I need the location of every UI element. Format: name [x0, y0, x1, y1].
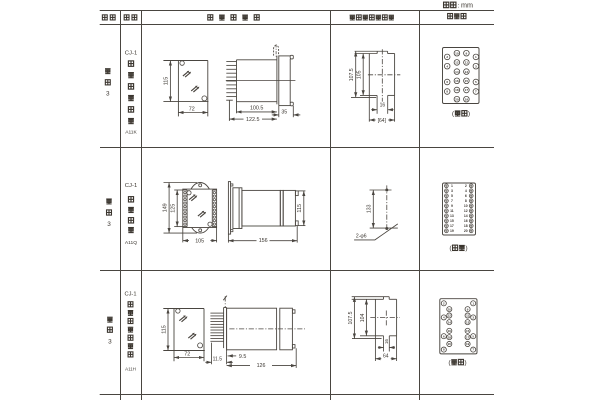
svg-text:8: 8 — [465, 199, 467, 203]
svg-text:15: 15 — [450, 219, 454, 223]
svg-text:156: 156 — [259, 238, 268, 244]
svg-text:17: 17 — [465, 88, 469, 92]
svg-text:4: 4 — [446, 64, 448, 68]
svg-text:10: 10 — [455, 51, 459, 55]
svg-text:8: 8 — [446, 90, 448, 94]
svg-text:115: 115 — [297, 204, 303, 213]
svg-text:107.5: 107.5 — [349, 68, 355, 81]
svg-text:3: 3 — [106, 91, 110, 98]
svg-text:9.5: 9.5 — [239, 354, 246, 360]
svg-text:3: 3 — [475, 64, 477, 68]
svg-text:133: 133 — [367, 204, 373, 213]
svg-text:): ) — [468, 111, 470, 118]
svg-text:5: 5 — [451, 194, 453, 198]
svg-text:18: 18 — [448, 335, 452, 339]
svg-text:18: 18 — [464, 224, 468, 228]
svg-text:A11Q: A11Q — [125, 240, 137, 246]
svg-text:20: 20 — [464, 229, 468, 233]
svg-text:11: 11 — [450, 209, 454, 213]
svg-text:15: 15 — [466, 329, 470, 333]
svg-text:12: 12 — [464, 209, 468, 213]
svg-text:12: 12 — [448, 314, 452, 318]
svg-text:149: 149 — [162, 203, 168, 212]
svg-text:105: 105 — [195, 238, 204, 244]
svg-text:7: 7 — [451, 199, 453, 203]
svg-text:16: 16 — [448, 329, 452, 333]
svg-text:9: 9 — [466, 51, 468, 55]
svg-text:2: 2 — [446, 55, 448, 59]
svg-text:6: 6 — [446, 80, 448, 84]
svg-text:105: 105 — [357, 70, 363, 79]
svg-text:14: 14 — [455, 70, 459, 74]
svg-text:19: 19 — [466, 342, 470, 346]
svg-text:mm: mm — [461, 1, 473, 10]
svg-text:20: 20 — [448, 342, 452, 346]
svg-text:64: 64 — [383, 353, 389, 359]
svg-text:15: 15 — [465, 79, 469, 83]
svg-text:16: 16 — [384, 339, 389, 345]
svg-text:2: 2 — [465, 184, 467, 188]
svg-text:11.5: 11.5 — [213, 357, 223, 363]
svg-text:11: 11 — [466, 314, 469, 318]
svg-text:122.5: 122.5 — [246, 117, 260, 123]
svg-text:3: 3 — [451, 189, 453, 193]
svg-text:35: 35 — [281, 109, 287, 115]
svg-text:13: 13 — [466, 320, 470, 324]
svg-text:13: 13 — [465, 70, 469, 74]
svg-text:19: 19 — [450, 229, 454, 233]
svg-text:16: 16 — [455, 79, 459, 83]
svg-text:CJ-1: CJ-1 — [124, 291, 136, 297]
svg-text:A11K: A11K — [125, 130, 137, 136]
svg-text:11: 11 — [465, 61, 469, 65]
svg-text:16: 16 — [464, 219, 468, 223]
svg-text:18: 18 — [455, 88, 459, 92]
svg-text:20: 20 — [455, 97, 459, 101]
svg-text:126: 126 — [257, 363, 266, 369]
svg-text:6: 6 — [465, 194, 467, 198]
svg-text:115: 115 — [164, 77, 170, 86]
svg-text:10: 10 — [448, 307, 452, 311]
svg-text:CJ-1: CJ-1 — [125, 183, 137, 189]
svg-text:14: 14 — [464, 214, 468, 218]
svg-text:14: 14 — [448, 320, 452, 324]
svg-text:13: 13 — [450, 214, 454, 218]
svg-text:4: 4 — [465, 189, 467, 193]
svg-text:): ) — [465, 245, 467, 252]
svg-text:100.5: 100.5 — [250, 106, 264, 112]
svg-text:19: 19 — [465, 97, 469, 101]
svg-text:16: 16 — [380, 103, 386, 109]
svg-text:9: 9 — [451, 204, 453, 208]
svg-text:115: 115 — [161, 325, 167, 334]
svg-text:10: 10 — [464, 204, 468, 208]
svg-text:5: 5 — [475, 80, 477, 84]
svg-text:17: 17 — [450, 224, 454, 228]
svg-text:17: 17 — [466, 335, 470, 339]
svg-text:72: 72 — [189, 106, 195, 112]
svg-text:125: 125 — [171, 204, 177, 213]
svg-text:1: 1 — [451, 184, 453, 188]
svg-text:[64]: [64] — [378, 118, 387, 124]
svg-text:A11H: A11H — [125, 367, 136, 372]
svg-text:3: 3 — [108, 339, 112, 346]
svg-text:2-φ6: 2-φ6 — [356, 234, 367, 240]
svg-text:CJ-1: CJ-1 — [125, 51, 137, 57]
svg-text:1: 1 — [475, 55, 477, 59]
svg-text:): ) — [464, 360, 466, 367]
svg-text:72: 72 — [184, 351, 190, 357]
svg-text::: : — [458, 2, 460, 9]
svg-text:12: 12 — [455, 61, 459, 65]
svg-text:3: 3 — [107, 221, 111, 228]
svg-text:104: 104 — [360, 313, 366, 322]
svg-text:7: 7 — [475, 90, 477, 94]
svg-text:107.5: 107.5 — [348, 311, 354, 324]
